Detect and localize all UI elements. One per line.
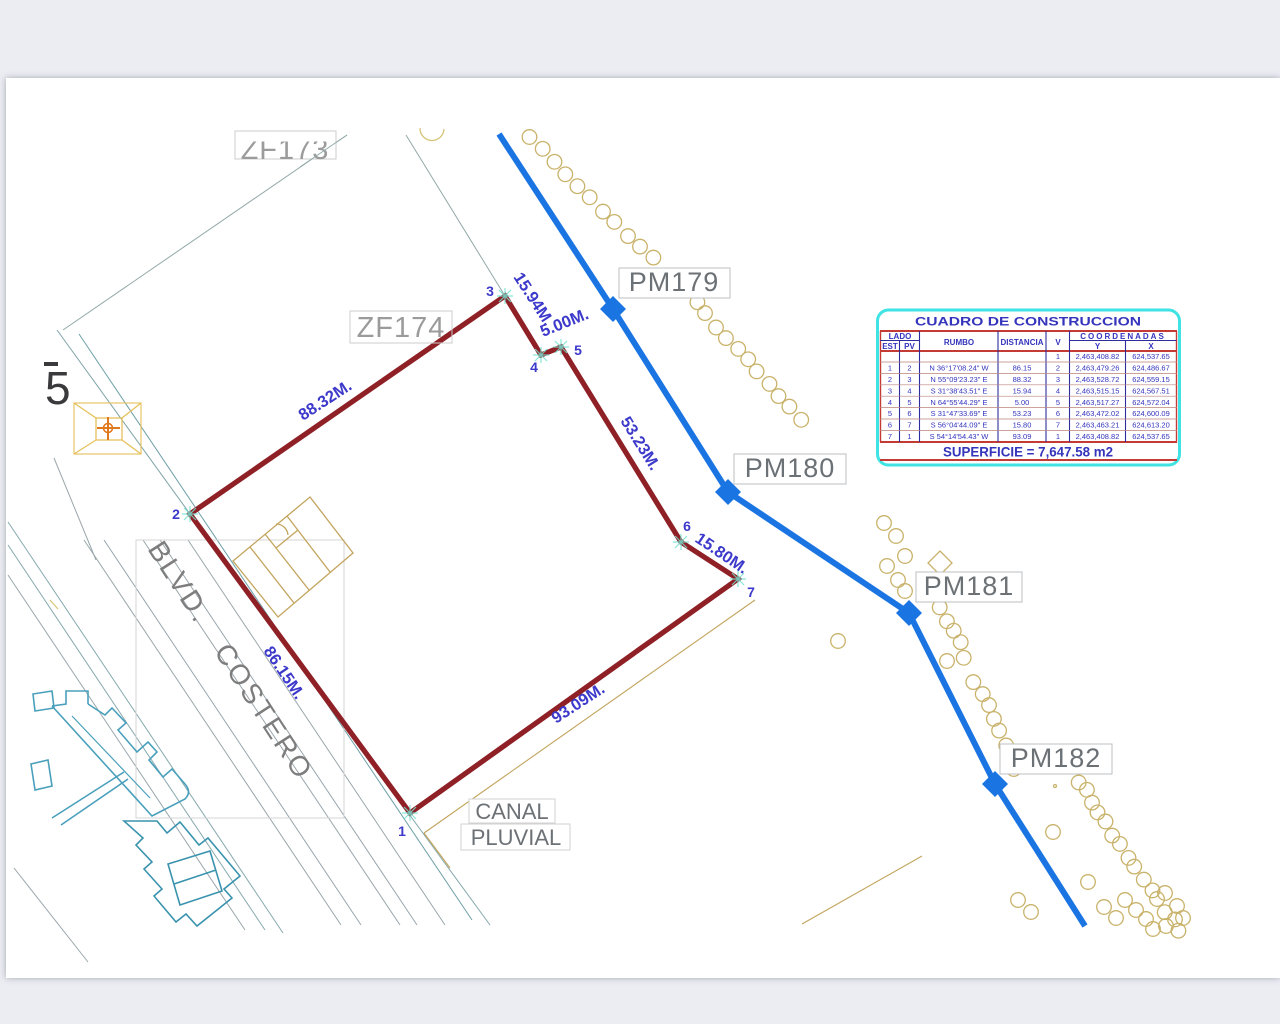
svg-text:S 56°04'44.09" E: S 56°04'44.09" E: [931, 421, 988, 430]
svg-text:2,463,517.27: 2,463,517.27: [1076, 398, 1120, 407]
svg-text:2,463,472.02: 2,463,472.02: [1076, 409, 1120, 418]
svg-text:PLUVIAL: PLUVIAL: [471, 825, 562, 850]
svg-text:4: 4: [530, 359, 538, 375]
svg-text:N 64°55'44.29" E: N 64°55'44.29" E: [930, 398, 987, 407]
svg-text:PM179: PM179: [629, 267, 720, 297]
svg-text:V: V: [1055, 338, 1061, 347]
svg-text:15.94: 15.94: [1013, 386, 1032, 395]
svg-text:1: 1: [888, 364, 892, 373]
svg-text:624,600.09: 624,600.09: [1132, 409, 1170, 418]
svg-text:624,537.65: 624,537.65: [1132, 432, 1170, 441]
svg-text:S 54°14'54.43" W: S 54°14'54.43" W: [930, 432, 990, 441]
svg-text:LADO: LADO: [889, 332, 912, 341]
svg-text:624,572.04: 624,572.04: [1132, 398, 1170, 407]
svg-text:1: 1: [1056, 432, 1060, 441]
svg-text:2,463,528.72: 2,463,528.72: [1076, 375, 1120, 384]
svg-text:5: 5: [45, 362, 71, 414]
svg-text:S 31°47'33.69" E: S 31°47'33.69" E: [931, 409, 988, 418]
svg-text:2: 2: [172, 506, 180, 522]
svg-text:X: X: [1148, 342, 1154, 351]
svg-text:5: 5: [888, 409, 892, 418]
svg-text:S 31°38'43.51" E: S 31°38'43.51" E: [931, 386, 988, 395]
svg-text:4: 4: [888, 398, 892, 407]
svg-text:53.23: 53.23: [1013, 409, 1032, 418]
svg-text:1: 1: [398, 823, 406, 839]
svg-text:2: 2: [1056, 364, 1060, 373]
svg-text:5.00: 5.00: [1015, 398, 1030, 407]
svg-text:4: 4: [1056, 386, 1060, 395]
svg-text:DISTANCIA: DISTANCIA: [1001, 338, 1044, 347]
svg-text:15.80: 15.80: [1013, 421, 1032, 430]
svg-text:2,463,515.15: 2,463,515.15: [1076, 386, 1120, 395]
svg-text:1: 1: [1056, 352, 1060, 361]
svg-text:5: 5: [907, 398, 911, 407]
svg-text:624,537.65: 624,537.65: [1132, 352, 1170, 361]
svg-text:3: 3: [888, 386, 892, 395]
svg-text:2,463,479.26: 2,463,479.26: [1076, 364, 1120, 373]
svg-text:EST: EST: [882, 342, 898, 351]
svg-text:6: 6: [683, 518, 691, 534]
svg-text:N 36°17'08.24" W: N 36°17'08.24" W: [929, 364, 989, 373]
svg-text:COORDENADAS: COORDENADAS: [1080, 332, 1166, 341]
svg-text:2,463,408.82: 2,463,408.82: [1076, 352, 1120, 361]
svg-text:2: 2: [907, 364, 911, 373]
svg-text:CANAL: CANAL: [475, 799, 548, 824]
svg-text:2,463,408.82: 2,463,408.82: [1076, 432, 1120, 441]
svg-text:PV: PV: [904, 342, 915, 351]
svg-text:PM181: PM181: [924, 571, 1015, 601]
svg-text:3: 3: [907, 375, 911, 384]
svg-text:624,567.51: 624,567.51: [1132, 386, 1170, 395]
svg-text:Y: Y: [1095, 342, 1101, 351]
svg-text:624,613.20: 624,613.20: [1132, 421, 1170, 430]
svg-text:N 55°09'23.23" E: N 55°09'23.23" E: [930, 375, 987, 384]
svg-text:6: 6: [888, 421, 892, 430]
svg-text:86.15: 86.15: [1013, 364, 1032, 373]
svg-text:PM182: PM182: [1011, 743, 1102, 773]
svg-text:3: 3: [1056, 375, 1060, 384]
svg-text:4: 4: [907, 386, 911, 395]
svg-text:PM180: PM180: [745, 453, 836, 483]
svg-text:93.09M.: 93.09M.: [548, 680, 608, 728]
svg-text:1: 1: [907, 432, 911, 441]
svg-text:88.32: 88.32: [1013, 375, 1032, 384]
svg-text:7: 7: [888, 432, 892, 441]
svg-text:6: 6: [1056, 409, 1060, 418]
svg-text:7: 7: [1056, 421, 1060, 430]
svg-text:2,463,463.21: 2,463,463.21: [1076, 421, 1120, 430]
svg-text:7: 7: [747, 584, 755, 600]
svg-text:3: 3: [486, 283, 494, 299]
svg-text:RUMBO: RUMBO: [944, 338, 974, 347]
svg-text:2: 2: [888, 375, 892, 384]
svg-text:624,559.15: 624,559.15: [1132, 375, 1170, 384]
svg-text:624,486.67: 624,486.67: [1132, 364, 1170, 373]
svg-text:ZF174: ZF174: [357, 312, 446, 344]
svg-text:93.09: 93.09: [1013, 432, 1032, 441]
svg-text:7: 7: [907, 421, 911, 430]
svg-text:5: 5: [1056, 398, 1060, 407]
svg-text:6: 6: [907, 409, 911, 418]
svg-text:53.23M.: 53.23M.: [617, 414, 664, 474]
svg-text:5: 5: [574, 342, 582, 358]
svg-text:CUADRO DE CONSTRUCCION: CUADRO DE CONSTRUCCION: [915, 315, 1141, 329]
svg-text:SUPERFICIE = 7,647.58 m2: SUPERFICIE = 7,647.58 m2: [943, 444, 1113, 460]
